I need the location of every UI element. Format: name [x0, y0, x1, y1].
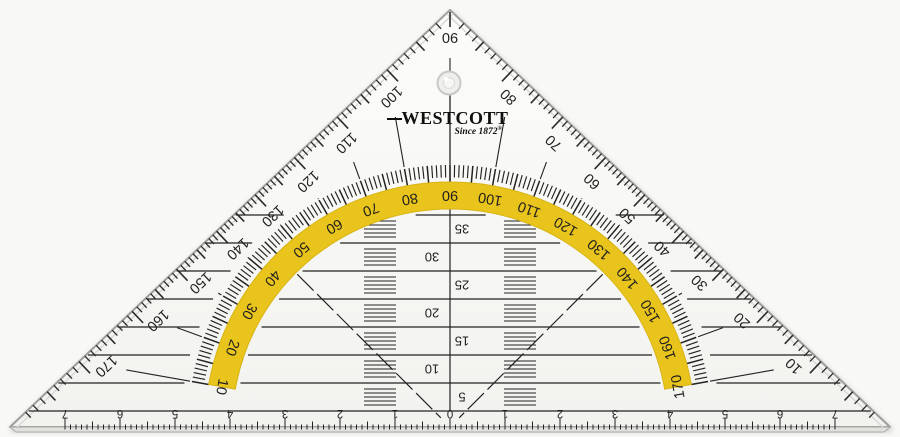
ruler-number: 3 [612, 407, 618, 419]
mid-scale-label: 5 [458, 389, 465, 404]
ruler-number: 5 [722, 407, 728, 419]
ruler-number: 1 [392, 407, 398, 419]
mid-scale-label: 30 [425, 249, 439, 264]
mid-scale-label: 10 [425, 361, 439, 376]
ruler-number: 0 [447, 407, 453, 419]
set-square-product-photo: 5101520253035102030405060708090100110120… [0, 0, 900, 437]
ruler-number: 6 [777, 407, 783, 419]
ruler-number: 2 [557, 407, 563, 419]
brand-tagline: Since 1872 [455, 127, 498, 137]
ruler-number: 6 [117, 407, 123, 419]
mid-scale-label: 25 [455, 277, 469, 292]
ruler-number: 5 [172, 407, 178, 419]
ruler-number: 3 [282, 407, 288, 419]
outer-degree-label: 90 [442, 29, 458, 45]
mid-scale-label: 15 [455, 333, 469, 348]
inner-degree-label: 90 [442, 187, 458, 203]
ruler-number: 7 [832, 407, 838, 419]
set-square-drawing: 5101520253035102030405060708090100110120… [0, 0, 900, 437]
brand-name: WESTCOTT [401, 108, 508, 128]
ruler-number: 7 [62, 407, 68, 419]
ruler-number: 4 [226, 407, 233, 419]
inner-degree-label: 10 [212, 377, 231, 396]
arc-tick [436, 165, 437, 177]
brand-logo: WESTCOTT Since 1872® [368, 109, 528, 138]
hanging-hole [438, 72, 461, 95]
inner-degree-label: 80 [400, 189, 419, 208]
hole-highlight [444, 77, 448, 81]
arc-tick [463, 165, 464, 177]
registered-mark: ® [498, 126, 502, 132]
brand-name-line: WESTCOTT [368, 109, 528, 127]
mid-scale-label: 35 [455, 221, 469, 236]
mid-scale-label: 20 [425, 305, 439, 320]
ruler-number: 4 [666, 407, 673, 419]
ruler-number: 1 [502, 407, 508, 419]
ruler-number: 2 [337, 407, 343, 419]
